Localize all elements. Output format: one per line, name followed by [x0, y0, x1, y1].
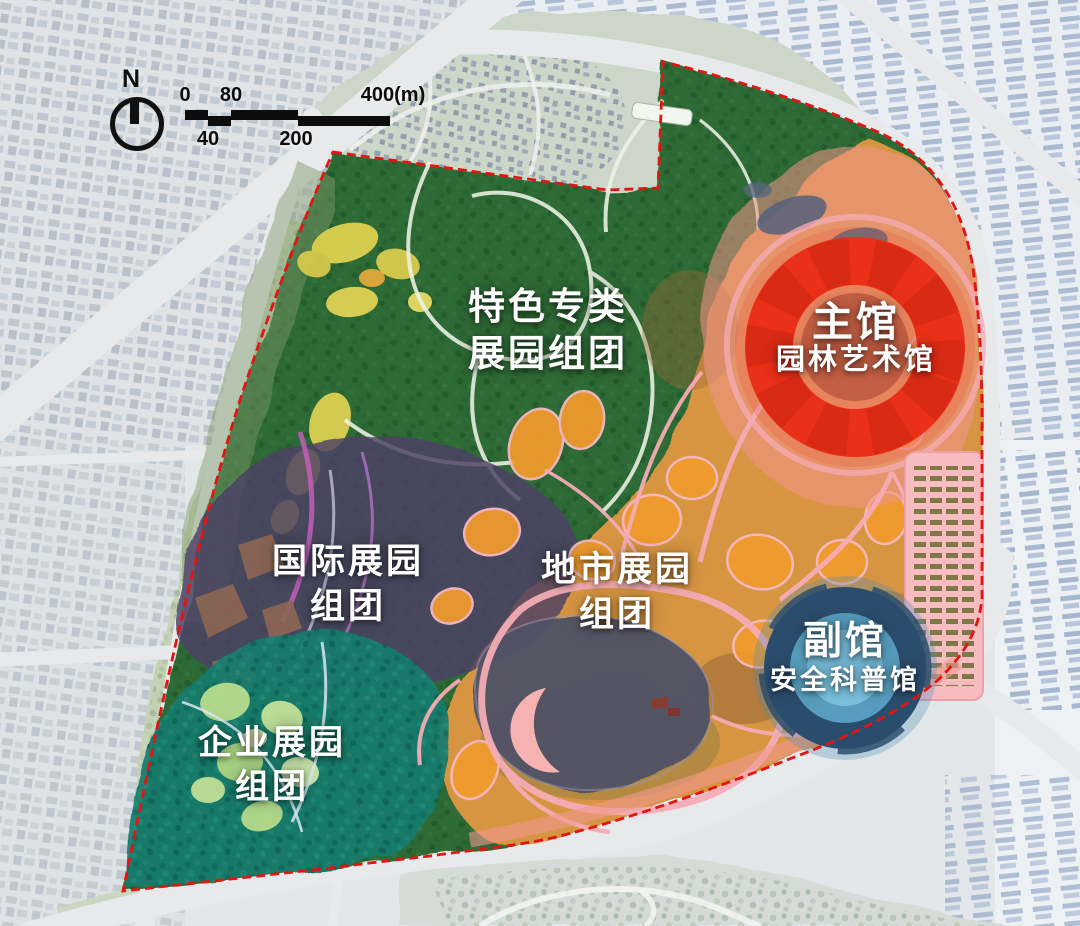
- label-international-zone: 国际展园 组团: [272, 540, 424, 630]
- label-featured-zone: 特色专类 展园组团: [468, 283, 628, 378]
- map-artwork: [0, 0, 1080, 926]
- scale-tick-200: 200: [279, 128, 312, 151]
- label-main-hall: 主馆 园林艺术馆: [776, 300, 936, 377]
- scale-tick-400: 400(m): [361, 84, 425, 107]
- scale-bar: 0 80 400(m) 40 200: [180, 84, 410, 148]
- label-enterprise-zone: 企业展园 组团: [198, 722, 346, 809]
- label-aux-hall: 副馆 安全科普馆: [770, 620, 920, 696]
- scale-tick-40: 40: [197, 128, 219, 151]
- scale-segment: [231, 110, 298, 120]
- scale-segment: [208, 116, 231, 126]
- scale-tick-80: 80: [220, 84, 242, 107]
- north-arrow: N: [108, 95, 160, 147]
- scale-segment: [185, 110, 208, 120]
- north-arrow-needle: [130, 100, 139, 124]
- masterplan-map: N 0 80 400(m) 40 200 特色专类 展园组团 主馆 园林艺术馆 …: [0, 0, 1080, 926]
- scale-segment: [298, 116, 390, 126]
- scale-tick-0: 0: [179, 84, 190, 107]
- label-city-zone: 地市展园 组团: [541, 548, 693, 638]
- north-label: N: [122, 65, 140, 94]
